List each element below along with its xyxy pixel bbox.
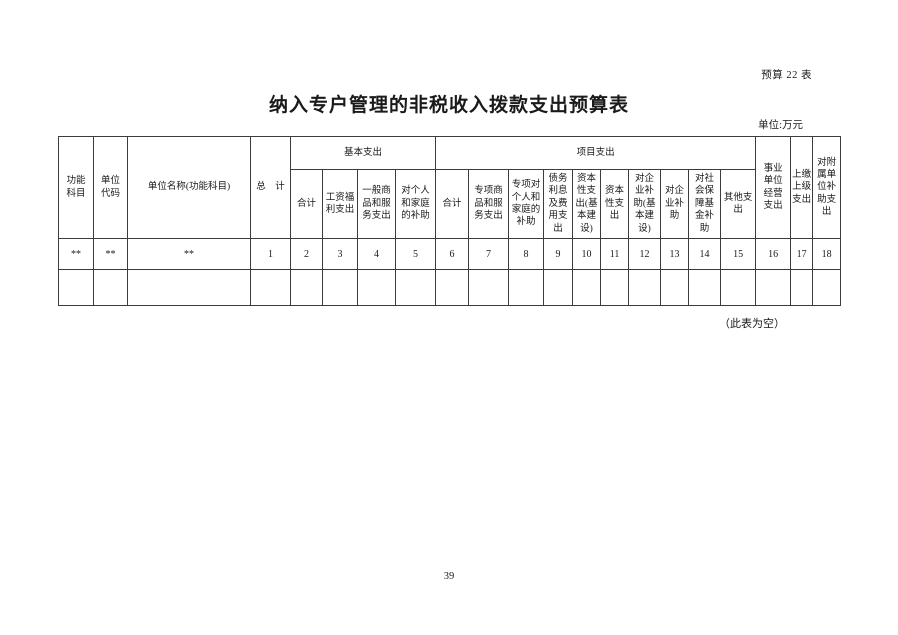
subheader-enterprise-subsidy-construction: 对企 业补 助(基 本建 设) [629, 170, 661, 239]
index-cell: ** [59, 239, 94, 270]
empty-cell [601, 270, 629, 306]
empty-cell [544, 270, 573, 306]
col-header-unit-name: 单位名称(功能科目) [128, 137, 251, 239]
document-page: 预算 22 表 纳入专户管理的非税收入拨款支出预算表 单位:万元 功能 科目 单… [0, 0, 898, 635]
subheader-wages-welfare: 工资福 利支出 [323, 170, 358, 239]
index-cell: 13 [661, 239, 689, 270]
subheader-other-expenditure: 其他支 出 [721, 170, 756, 239]
empty-cell [509, 270, 544, 306]
subheader-special-individual-family: 专项对 个人和 家庭的 补助 [509, 170, 544, 239]
col-header-operating-expenditure: 事业 单位 经营 支出 [756, 137, 791, 239]
index-cell: 4 [358, 239, 396, 270]
empty-table-note: （此表为空） [719, 315, 785, 331]
page-title: 纳入专户管理的非税收入拨款支出预算表 [0, 90, 898, 117]
col-header-to-upper-level: 上缴 上级 支出 [791, 137, 813, 239]
index-cell: 15 [721, 239, 756, 270]
index-cell: 2 [291, 239, 323, 270]
subheader-capital-basic-construction: 资本 性支 出(基 本建 设) [573, 170, 601, 239]
empty-cell [629, 270, 661, 306]
index-cell: 6 [436, 239, 469, 270]
col-header-affiliated-subsidy: 对附 属单 位补 助支 出 [813, 137, 841, 239]
group-header-basic-expenditure: 基本支出 [291, 137, 436, 170]
empty-cell [813, 270, 841, 306]
empty-cell [573, 270, 601, 306]
subheader-individual-family-subsidy: 对个人 和家庭 的补助 [396, 170, 436, 239]
subheader-debt-interest-fees: 债务 利息 及费 用支 出 [544, 170, 573, 239]
empty-cell [661, 270, 689, 306]
index-cell: 7 [469, 239, 509, 270]
col-header-unit-code: 单位 代码 [94, 137, 128, 239]
index-cell: 18 [813, 239, 841, 270]
index-cell: 1 [251, 239, 291, 270]
empty-cell [358, 270, 396, 306]
page-number: 39 [0, 571, 898, 582]
subheader-project-subtotal: 合计 [436, 170, 469, 239]
col-header-grand-total: 总 计 [251, 137, 291, 239]
empty-cell [756, 270, 791, 306]
column-index-row: ** ** ** 1 2 3 4 5 6 7 8 9 10 11 12 13 1… [59, 239, 841, 270]
subheader-special-goods-services: 专项商 品和服 务支出 [469, 170, 509, 239]
index-cell: 11 [601, 239, 629, 270]
empty-cell [689, 270, 721, 306]
empty-cell [323, 270, 358, 306]
index-cell: 16 [756, 239, 791, 270]
index-cell: 14 [689, 239, 721, 270]
table-number-label: 预算 22 表 [761, 67, 812, 82]
index-cell: ** [128, 239, 251, 270]
subheader-goods-services: 一般商 品和服 务支出 [358, 170, 396, 239]
subheader-enterprise-subsidy: 对企 业补 助 [661, 170, 689, 239]
index-cell: 10 [573, 239, 601, 270]
subheader-capital-expenditure: 资本 性支 出 [601, 170, 629, 239]
index-cell: 8 [509, 239, 544, 270]
index-cell: 3 [323, 239, 358, 270]
budget-table: 功能 科目 单位 代码 单位名称(功能科目) 总 计 基本支出 项目支出 事业 … [58, 136, 841, 306]
empty-cell [251, 270, 291, 306]
index-cell: ** [94, 239, 128, 270]
empty-cell [59, 270, 94, 306]
index-cell: 5 [396, 239, 436, 270]
col-header-func-subject: 功能 科目 [59, 137, 94, 239]
subheader-social-security-fund-subsidy: 对社 会保 障基 金补 助 [689, 170, 721, 239]
subheader-basic-subtotal: 合计 [291, 170, 323, 239]
empty-data-row [59, 270, 841, 306]
empty-cell [94, 270, 128, 306]
index-cell: 12 [629, 239, 661, 270]
unit-note: 单位:万元 [758, 117, 803, 132]
empty-cell [396, 270, 436, 306]
index-cell: 17 [791, 239, 813, 270]
empty-cell [791, 270, 813, 306]
empty-cell [469, 270, 509, 306]
empty-cell [436, 270, 469, 306]
index-cell: 9 [544, 239, 573, 270]
empty-cell [128, 270, 251, 306]
group-header-project-expenditure: 项目支出 [436, 137, 756, 170]
empty-cell [721, 270, 756, 306]
empty-cell [291, 270, 323, 306]
